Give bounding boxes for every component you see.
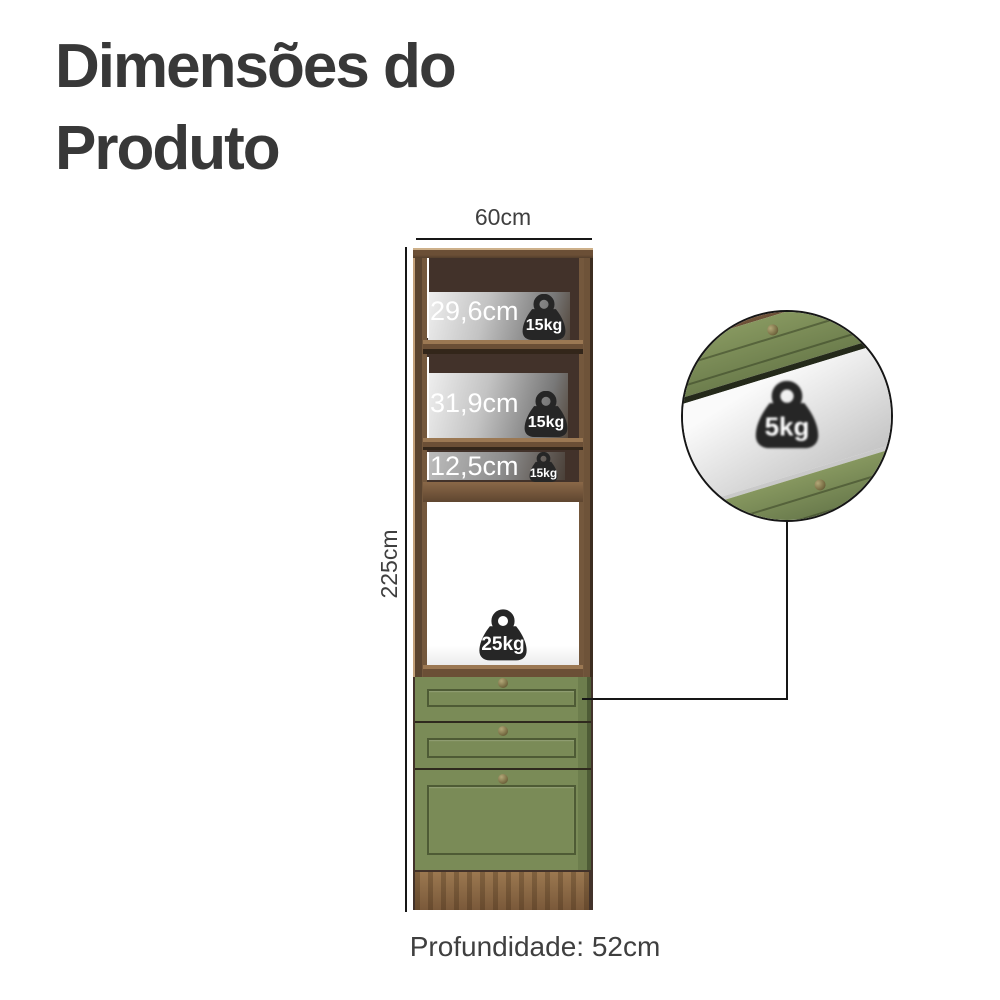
drawer-2-knob [498, 726, 508, 736]
height-dimension-line [405, 247, 407, 912]
page-title-line1: Dimensões do [55, 26, 455, 108]
shelf-divider-2 [423, 438, 583, 450]
drawer-capacity-value: 5kg [750, 412, 824, 443]
cabinet-top-frame [413, 248, 593, 258]
shelf2-capacity-badge: 15kg [519, 391, 573, 437]
shelf1-size-label: 29,6cm [430, 296, 519, 327]
shelf2-size-label: 31,9cm [430, 388, 519, 419]
cabinet-left-wall [413, 248, 427, 677]
drawer-3-panel [427, 785, 576, 855]
shelf2-measure-tick [427, 357, 429, 438]
callout-line-horizontal [582, 698, 788, 700]
depth-dimension-label: Profundidade: 52cm [380, 931, 690, 963]
drawer-capacity-badge: 5kg [750, 381, 824, 449]
shelf3-measure-tick [427, 452, 429, 480]
shelf2-capacity-value: 15kg [519, 414, 573, 432]
drawer-stack [415, 677, 591, 870]
drawer-3 [415, 770, 591, 870]
drawer-1 [415, 677, 591, 721]
oven-compartment-top-rail [423, 482, 583, 502]
drawer-3-knob [498, 774, 508, 784]
shelf3-size-label: 12,5cm [430, 451, 519, 482]
cabinet-base-plinth [415, 872, 589, 910]
drawer-2 [415, 723, 591, 768]
height-dimension-label: 225cm [376, 528, 402, 600]
shelf1-capacity-badge: 15kg [517, 294, 571, 340]
callout-line-vertical [786, 521, 788, 700]
page-title-line2: Produto [55, 108, 455, 190]
drawer-1-panel [427, 689, 576, 707]
cabinet-right-wall [579, 248, 593, 677]
shelf3-capacity-badge: 15kg [523, 452, 564, 482]
shelf-divider-1 [423, 340, 583, 354]
shelf3-capacity-value: 15kg [523, 466, 564, 480]
page-title: Dimensões do Produto [55, 26, 455, 190]
width-dimension-label: 60cm [413, 204, 593, 231]
oven-capacity-value: 25kg [475, 634, 531, 656]
oven-capacity-badge: 25kg [475, 608, 531, 662]
shelf1-capacity-value: 15kg [517, 317, 571, 335]
oven-compartment-bottom-rail [423, 665, 583, 677]
drawer-2-panel [427, 738, 576, 758]
shelf1-measure-tick [427, 258, 429, 338]
cabinet-front-view: 29,6cm 15kg 31,9cm 15kg 12,5cm [413, 248, 593, 910]
dimensions-infographic: Dimensões do Produto 60cm 225cm 29,6cm 1… [0, 0, 1000, 1000]
width-dimension-line [416, 238, 592, 240]
drawer-1-knob [498, 678, 508, 688]
drawer-detail-callout: 5kg [681, 310, 893, 522]
